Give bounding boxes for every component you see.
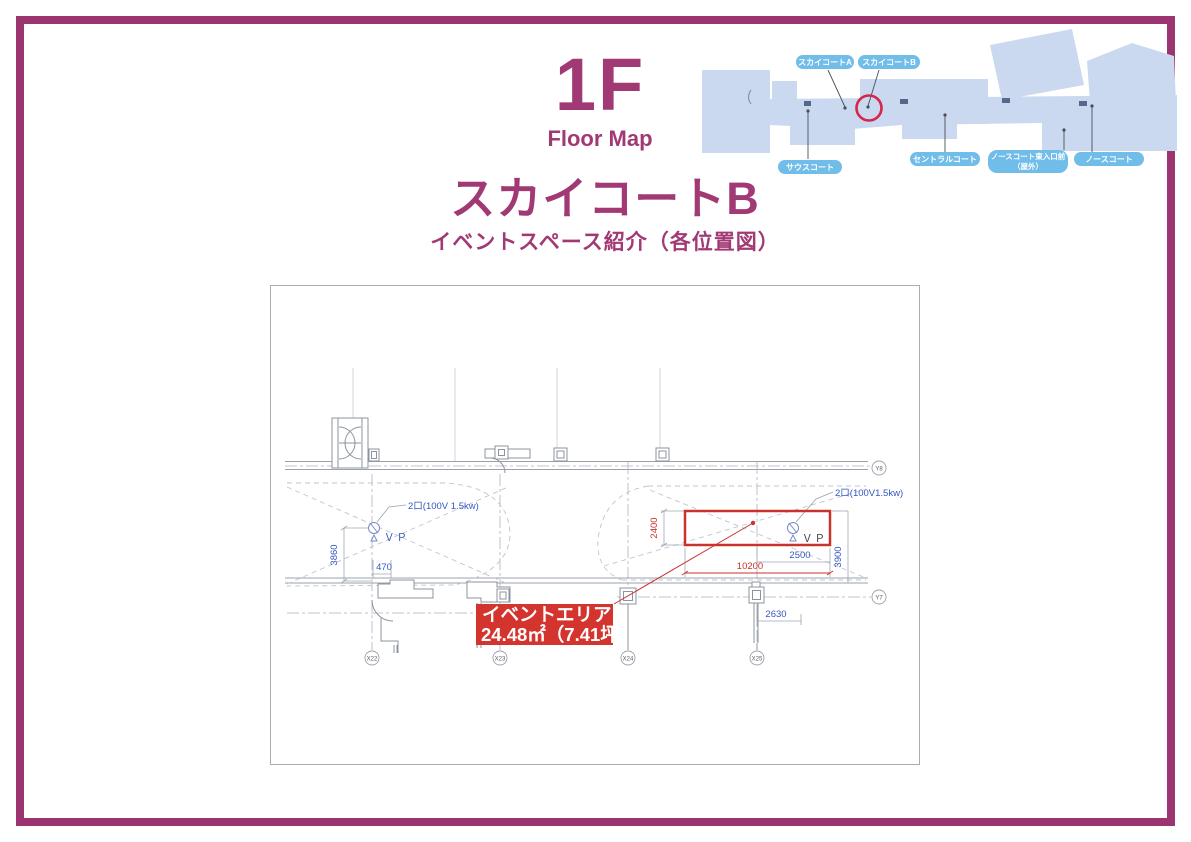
door-structure — [485, 446, 530, 473]
minimap-label-sky-b: スカイコートB — [858, 55, 920, 69]
minimap-label-sky-a-text: スカイコートA — [798, 58, 852, 67]
dim-right-offset: 2500 — [789, 550, 810, 561]
outlet-left-label: 2口(100V 1.5kw) — [408, 501, 479, 512]
minimap-label-central-text: セントラルコート — [913, 155, 977, 164]
minimap-label-south: サウスコート — [778, 160, 842, 174]
minimap-label-north-east-line1: ノースコート東入口前 — [991, 151, 1066, 161]
grid-label-x23: X23 — [495, 657, 506, 663]
minimap-label-sky-a: スカイコートA — [796, 55, 854, 69]
grid-label-y8: Y8 — [875, 467, 883, 473]
outlet-left-vp: ＶＰ — [384, 532, 409, 544]
page: 1F Floor Map スカイコートB イベントスペース紹介（各位置図） — [0, 0, 1191, 842]
dim-event-width: 10200 — [737, 561, 763, 572]
overview-minimap: スカイコートA スカイコートB サウスコート セントラルコート ノースコート東入… — [695, 25, 1185, 179]
outlet-left: 2口(100V 1.5kw) ＶＰ — [369, 501, 479, 544]
minimap-label-north: ノースコート — [1074, 152, 1144, 166]
event-area-label-line1: イベントエリア — [482, 604, 612, 625]
floor-number: 1F — [500, 48, 700, 122]
floorplan-drawing: 3860 470 2400 2500 3900 10200 2630 2口(10… — [271, 286, 919, 764]
outlet-right-label: 2口(100V1.5kw) — [835, 488, 903, 499]
dim-left-offset: 470 — [376, 562, 392, 573]
dim-column-offset: 2630 — [765, 609, 786, 620]
upper-columns — [554, 448, 669, 461]
floor-caption: Floor Map — [500, 126, 700, 152]
outlet-right: 2口(100V1.5kw) ＶＰ — [788, 488, 904, 545]
dim-event-height: 2400 — [649, 517, 660, 538]
minimap-label-north-east: ノースコート東入口前 （屋外） — [988, 150, 1068, 173]
grid-label-x25: X25 — [752, 657, 763, 663]
dim-left-height: 3860 — [329, 544, 340, 565]
page-title: スカイコートB — [355, 174, 855, 224]
grid-label-x24: X24 — [623, 657, 634, 663]
outlet-right-vp: ＶＰ — [802, 533, 827, 545]
title-block: スカイコートB イベントスペース紹介（各位置図） — [355, 174, 855, 256]
minimap-buildings — [702, 29, 1177, 153]
dim-right-height: 3900 — [833, 546, 844, 567]
minimap-label-north-text: ノースコート — [1085, 155, 1133, 164]
event-area-label: イベントエリア 24.48㎡（7.41坪） — [476, 604, 637, 645]
minimap-label-central: セントラルコート — [910, 152, 980, 166]
minimap-label-south-text: サウスコート — [786, 163, 834, 172]
page-subtitle: イベントスペース紹介（各位置図） — [355, 226, 855, 256]
floorplan-panel: 3860 470 2400 2500 3900 10200 2630 2口(10… — [270, 285, 920, 765]
elevator-structure — [332, 418, 379, 468]
minimap-label-north-east-line2: （屋外） — [1013, 161, 1043, 171]
grid-label-y7: Y7 — [875, 596, 883, 602]
event-label-leader — [614, 523, 753, 604]
minimap-label-sky-b-text: スカイコートB — [862, 58, 916, 67]
header: 1F Floor Map — [500, 48, 700, 152]
event-area-label-line2: 24.48㎡（7.41坪） — [481, 624, 637, 645]
grid-label-x22: X22 — [367, 657, 378, 663]
